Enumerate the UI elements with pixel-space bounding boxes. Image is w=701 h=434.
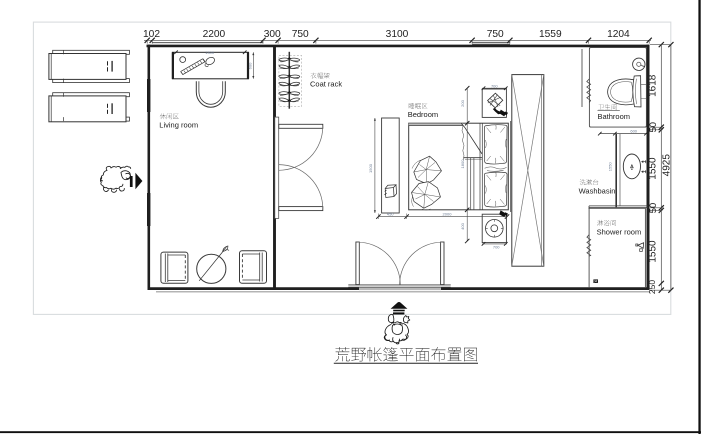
svg-text:1550: 1550 xyxy=(647,240,658,263)
svg-text:2000: 2000 xyxy=(443,211,453,216)
svg-text:600: 600 xyxy=(248,62,253,69)
svg-text:300: 300 xyxy=(264,29,281,40)
svg-text:Washbasin: Washbasin xyxy=(579,187,616,196)
svg-text:700: 700 xyxy=(491,83,498,88)
svg-text:Coat rack: Coat rack xyxy=(310,80,342,89)
svg-text:1500: 1500 xyxy=(205,50,215,55)
svg-text:450: 450 xyxy=(387,211,394,216)
svg-text:750: 750 xyxy=(487,29,504,40)
svg-text:400: 400 xyxy=(460,222,465,229)
svg-text:Living room: Living room xyxy=(159,121,198,130)
svg-text:Bedroom: Bedroom xyxy=(408,110,438,119)
svg-text:1618: 1618 xyxy=(647,74,658,97)
svg-text:1559: 1559 xyxy=(539,29,562,40)
svg-text:1500: 1500 xyxy=(368,163,373,173)
svg-text:Bathroom: Bathroom xyxy=(598,112,631,121)
svg-text:4925: 4925 xyxy=(661,154,672,177)
svg-text:250: 250 xyxy=(647,280,657,294)
svg-text:50: 50 xyxy=(647,122,658,132)
svg-text:3100: 3100 xyxy=(386,29,409,40)
svg-text:750: 750 xyxy=(292,29,309,40)
svg-text:1550: 1550 xyxy=(607,162,612,172)
svg-text:1204: 1204 xyxy=(607,29,630,40)
svg-text:600: 600 xyxy=(630,128,637,133)
svg-text:1800: 1800 xyxy=(460,159,465,169)
svg-text:102: 102 xyxy=(143,29,160,40)
svg-text:2200: 2200 xyxy=(203,29,226,40)
svg-text:50: 50 xyxy=(647,203,658,213)
svg-text:1550: 1550 xyxy=(647,157,658,180)
svg-text:Shower room: Shower room xyxy=(597,228,642,237)
svg-text:200: 200 xyxy=(460,99,465,106)
svg-text:700: 700 xyxy=(493,244,500,249)
